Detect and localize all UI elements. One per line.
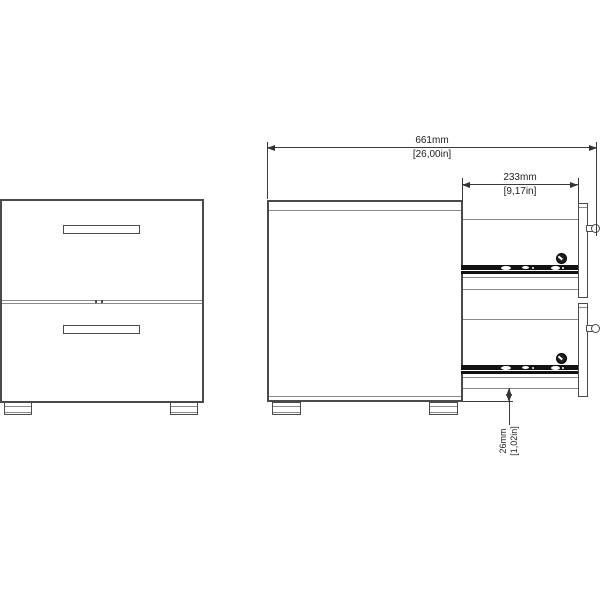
slide-groove-line	[461, 270, 579, 271]
dim-total-depth-arrow-left	[267, 145, 275, 151]
dim-total-depth-label-in: [26,00in]	[382, 149, 482, 160]
slide-groove-line	[461, 370, 579, 371]
dim-drawer-depth-ext-left	[462, 178, 463, 202]
drawer-2-mid-line	[463, 377, 578, 378]
divider-dowel-mark	[101, 300, 103, 303]
slide-rivet-dot	[562, 267, 564, 269]
drawer-2-slide-rail	[461, 365, 579, 374]
slide-rivet-dot	[562, 367, 564, 369]
dim-drawer-depth-arrow-left	[462, 182, 470, 188]
slide-cutout	[501, 366, 511, 370]
foot-base-line	[5, 412, 31, 413]
dim-drawer-depth-line	[462, 184, 578, 185]
foot-lip-line	[171, 406, 197, 407]
cam-screw-icon	[556, 353, 567, 364]
divider-dowel-mark	[95, 300, 97, 303]
dim-total-depth-line	[267, 147, 597, 148]
drawer-1-front-panel	[578, 203, 588, 298]
dim-bottom-clearance-label: 26mm [1,02in]	[498, 418, 520, 464]
dim-total-depth-ext-left	[267, 142, 268, 199]
slide-cutout	[501, 266, 511, 270]
foot-base-line	[273, 412, 300, 413]
slide-rivet-dot	[532, 267, 534, 269]
dim-drawer-depth-ext-right	[578, 178, 579, 203]
slide-cutout	[522, 266, 529, 269]
front-drawer-1-handle	[63, 225, 140, 234]
dim-drawer-depth-label-in: [9,17in]	[470, 186, 570, 197]
dim-drawer-depth-arrow-right	[570, 182, 578, 188]
front-foot-right	[170, 402, 198, 415]
drawer-2-top-line	[463, 319, 578, 320]
front-panel-edge-line	[579, 207, 587, 208]
foot-base-line	[171, 412, 197, 413]
drawer-1-bottom-line	[463, 289, 578, 290]
drawer-1-mid-line	[463, 277, 578, 278]
foot-lip-line	[5, 406, 31, 407]
front-panel-edge-line	[579, 307, 587, 308]
cam-screw-icon	[556, 253, 567, 264]
front-drawer-divider-line-bottom	[2, 303, 202, 304]
slide-rivet-dot	[532, 367, 534, 369]
foot-lip-line	[273, 406, 300, 407]
dim-drawer-depth-label-mm: 233mm	[470, 172, 570, 183]
dim-bottom-clearance-arrow-down	[506, 394, 512, 402]
foot-lip-line	[430, 406, 457, 407]
drawer-2-knob-cap	[591, 324, 600, 333]
dim-bottom-clearance-label-in: [1,02in]	[509, 418, 520, 464]
side-body-outline	[267, 200, 463, 402]
drawer-1-slide-rail	[461, 265, 579, 274]
drawer-2-front-panel	[578, 303, 588, 397]
front-foot-left	[4, 402, 32, 415]
front-drawer-2-handle	[63, 325, 140, 334]
drawer-1-top-line	[463, 219, 578, 220]
dim-total-depth-ext-right	[596, 142, 597, 236]
foot-base-line	[430, 412, 457, 413]
slide-cutout	[551, 366, 560, 370]
dim-bottom-clearance-label-mm: 26mm	[498, 418, 509, 464]
side-foot-left	[272, 402, 301, 415]
side-foot-right	[429, 402, 458, 415]
technical-drawing-canvas: 661mm [26,00in] 233mm [9,17in] 26mm [1,0…	[0, 0, 600, 600]
side-bottom-plate-line	[269, 396, 461, 397]
dim-total-depth-label-mm: 661mm	[382, 135, 482, 146]
slide-cutout	[522, 366, 529, 369]
drawer-2-bottom-line	[463, 388, 579, 389]
side-top-panel-line	[269, 210, 461, 211]
slide-cutout	[551, 266, 560, 270]
